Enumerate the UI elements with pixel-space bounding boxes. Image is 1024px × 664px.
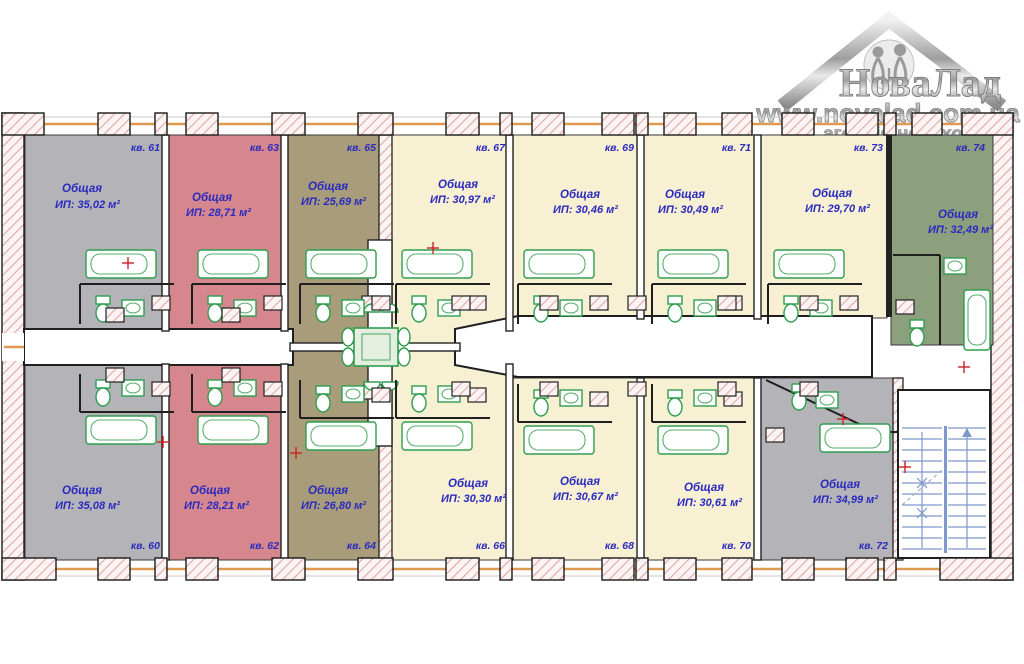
apartment-area-value: ИП: 30,97 м² bbox=[430, 194, 495, 206]
apartment-area-label: Общая bbox=[684, 482, 724, 494]
apartment-number: кв. 61 bbox=[131, 142, 160, 154]
apartment-area-label: Общая bbox=[812, 188, 852, 200]
apartment-area-label: Общая bbox=[192, 192, 232, 204]
toilet-icon bbox=[910, 320, 924, 346]
apartment-area-label: Общая bbox=[665, 189, 705, 201]
apartment-area-value: ИП: 32,49 м² bbox=[928, 224, 993, 236]
apartment-area-label: Общая bbox=[820, 479, 860, 491]
apartment-area-value: ИП: 25,69 м² bbox=[301, 196, 366, 208]
apartment-area-value: ИП: 30,49 м² bbox=[658, 204, 723, 216]
apartment-area-value: ИП: 29,70 м² bbox=[805, 203, 870, 215]
apartment-60-area bbox=[25, 364, 166, 560]
apartment-area-value: ИП: 28,71 м² bbox=[186, 207, 251, 219]
apartment-number: кв. 74 bbox=[956, 142, 985, 154]
apartment-66-area bbox=[392, 348, 510, 560]
apartment-area-label: Общая bbox=[308, 485, 348, 497]
apartment-area-value: ИП: 30,46 м² bbox=[553, 204, 618, 216]
door-block bbox=[896, 300, 914, 314]
apartment-area-label: Общая bbox=[62, 485, 102, 497]
apartment-number: кв. 69 bbox=[605, 142, 634, 154]
stairwell bbox=[898, 390, 990, 558]
apartment-64-area bbox=[285, 348, 381, 560]
apartment-area-label: Общая bbox=[62, 183, 102, 195]
apartment-71-area bbox=[643, 135, 756, 318]
apartment-number: кв. 73 bbox=[854, 142, 883, 154]
corridor-left bbox=[24, 329, 293, 365]
apartment-area-value: ИП: 26,80 м² bbox=[301, 500, 366, 512]
apartment-area-label: Общая bbox=[938, 209, 978, 221]
apartment-number: кв. 62 bbox=[250, 540, 279, 552]
apartment-number: кв. 60 bbox=[131, 540, 160, 552]
apartment-area-value: ИП: 30,67 м² bbox=[553, 491, 618, 503]
apartment-number: кв. 64 bbox=[347, 540, 376, 552]
apartment-area-label: Общая bbox=[560, 476, 600, 488]
apartment-71 bbox=[643, 135, 756, 318]
sink-icon bbox=[944, 258, 966, 274]
apartment-73-area bbox=[760, 135, 887, 318]
apartment-area-label: Общая bbox=[448, 478, 488, 490]
apartment-number: кв. 68 bbox=[605, 540, 634, 552]
floor-plan-page: НоваЛад www.novalad.com.ua агенція нерух… bbox=[0, 0, 1024, 664]
apartment-area-value: ИП: 34,99 м² bbox=[813, 494, 878, 506]
sink-icon bbox=[816, 392, 838, 408]
corridor-right bbox=[455, 316, 872, 377]
floor-plan-drawing: НоваЛад www.novalad.com.ua агенція нерух… bbox=[0, 0, 1024, 664]
apartment-area-label: Общая bbox=[308, 181, 348, 193]
apartment-area-value: ИП: 30,61 м² bbox=[677, 497, 742, 509]
building: кв. 61 Общая ИП: 35,02 м² кв. 63 Общая И… bbox=[2, 113, 1013, 580]
apartment-number: кв. 65 bbox=[347, 142, 376, 154]
apartment-73 bbox=[760, 135, 887, 318]
apartment-64 bbox=[285, 348, 381, 560]
door-block bbox=[766, 428, 784, 442]
apartment-69-area bbox=[512, 135, 639, 318]
apartment-66 bbox=[392, 348, 510, 560]
apartment-number: кв. 63 bbox=[250, 142, 279, 154]
bathtub-icon bbox=[820, 424, 890, 452]
right-outer-wall bbox=[991, 113, 1013, 580]
apartment-area-value: ИП: 28,21 м² bbox=[184, 500, 249, 512]
apartment-number: кв. 72 bbox=[859, 540, 888, 552]
apartment-60 bbox=[25, 364, 166, 560]
apartment-area-label: Общая bbox=[438, 179, 478, 191]
apartment-area-value: ИП: 30,30 м² bbox=[441, 493, 506, 505]
apartment-area-label: Общая bbox=[560, 189, 600, 201]
apartment-number: кв. 70 bbox=[722, 540, 751, 552]
apartment-69 bbox=[512, 135, 639, 318]
apartment-area-label: Общая bbox=[190, 485, 230, 497]
apartment-number: кв. 66 bbox=[476, 540, 505, 552]
apartment-area-value: ИП: 35,08 м² bbox=[55, 500, 120, 512]
apartment-number: кв. 71 bbox=[722, 142, 751, 154]
apartment-area-value: ИП: 35,02 м² bbox=[55, 199, 120, 211]
apartment-number: кв. 67 bbox=[476, 142, 506, 154]
